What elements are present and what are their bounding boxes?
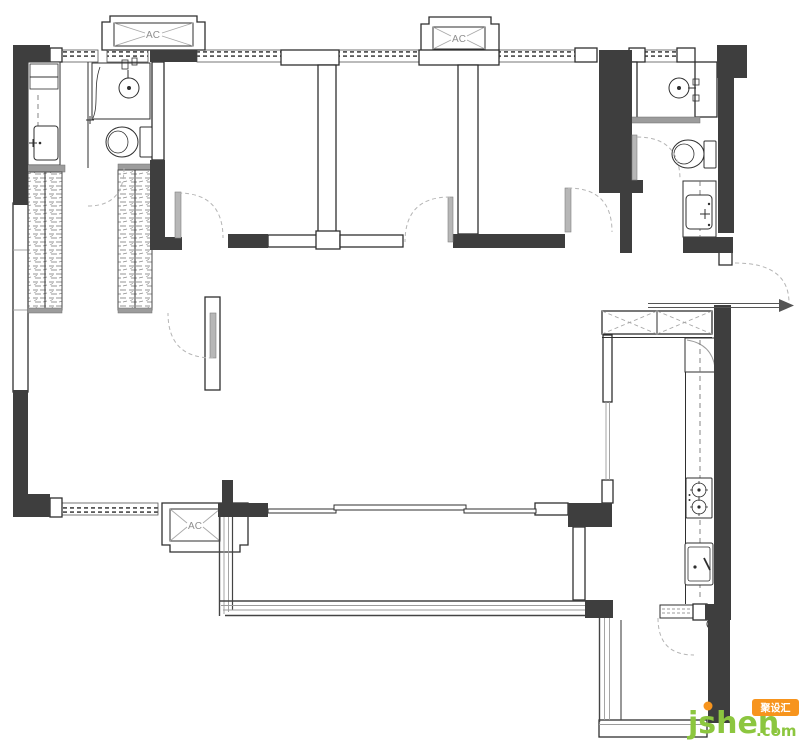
door-swing-arc-icon (658, 618, 694, 655)
door-swing-arc-icon (405, 197, 450, 242)
door-swing-arc-icon (178, 193, 223, 238)
vanity-sink-icon (34, 126, 58, 160)
main-balcony (219, 505, 612, 616)
corner-cabinet-icon (685, 338, 717, 372)
watermark-badge-text[interactable]: 聚设汇 (760, 702, 791, 715)
vanity-sink-icon (683, 181, 716, 237)
left-window (13, 203, 28, 392)
entry-hinge-block (719, 252, 732, 265)
gas-stove-icon (686, 478, 712, 518)
toilet-icon (672, 140, 716, 168)
door-swing-arc-icon (735, 263, 789, 303)
bathroom-1 (86, 58, 152, 157)
door-leaf-hatched (660, 605, 693, 618)
toilet-icon (106, 127, 152, 157)
x-cabinet-icon (602, 311, 712, 338)
ac-platform-top-left: AC (102, 16, 205, 50)
kitchen (602, 311, 717, 629)
floor-plan-page: AC AC AC (0, 0, 800, 741)
watermark-logo[interactable]: jsheh 聚设汇 .com (687, 699, 799, 741)
door-leaf (448, 197, 453, 242)
door-leaf (175, 192, 181, 238)
ac-label: AC (188, 521, 202, 532)
door-leaf (632, 135, 637, 180)
watermark-tld[interactable]: .com (756, 722, 797, 740)
door-leaf (210, 313, 216, 358)
ac-label: AC (146, 30, 160, 41)
half-wall-divider (630, 117, 700, 123)
kitchen-sink-icon (685, 543, 713, 585)
door-leaf (565, 188, 571, 232)
floor-plan-drawing: AC AC AC (0, 0, 800, 741)
kitchen-door (660, 604, 707, 620)
door-swing-arc-icon (568, 188, 612, 232)
sliding-door-icon (268, 505, 536, 513)
ac-label: AC (452, 34, 466, 45)
